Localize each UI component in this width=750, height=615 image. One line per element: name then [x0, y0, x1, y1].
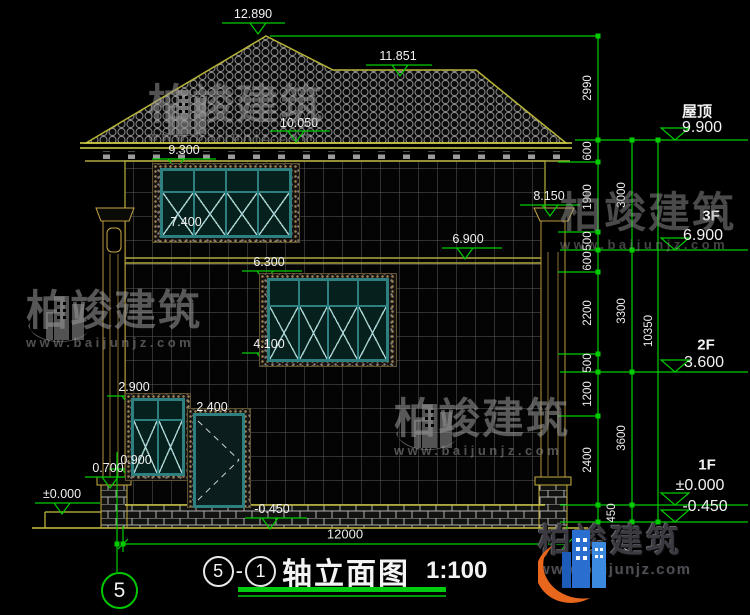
elev-door-top: 2.400	[196, 400, 227, 414]
entry-door	[193, 413, 245, 508]
dim-1900: 1900	[582, 184, 594, 210]
elevation-drawing: 12.890 11.851 10.050 9.300 8.150 7.400 6…	[0, 0, 750, 615]
dim-2990: 2990	[582, 75, 594, 101]
title-underline-thin	[238, 595, 446, 597]
dim-2400: 2400	[582, 447, 594, 473]
site-logo-icon	[538, 524, 624, 604]
elev-pier-cap: 0.700	[92, 461, 123, 475]
dim-500a: 500	[582, 231, 594, 250]
title-axis-start: 5	[203, 556, 234, 587]
title-underline-thick	[238, 587, 446, 592]
dim-600a: 600	[582, 141, 594, 160]
site-logo: 柏竣建筑 www.baijunjz.com	[538, 524, 691, 578]
dim-3600: 3600	[616, 425, 628, 451]
rafter-tails	[88, 151, 568, 159]
level-1f-label: 1F	[698, 457, 716, 474]
plinth	[108, 505, 560, 528]
door-swing-icon	[196, 416, 242, 505]
dim-600b: 600	[582, 251, 594, 270]
elev-f3-floor: 6.900	[452, 232, 483, 246]
elev-pilaster: 8.150	[533, 189, 564, 203]
roof	[86, 36, 566, 143]
elev-f3-sill: 7.400	[170, 215, 201, 229]
title-scale: 1:100	[426, 557, 487, 585]
level-roof-value: 9.900	[682, 119, 722, 137]
entry-step	[45, 512, 101, 528]
elev-ground: ±0.000	[43, 487, 81, 501]
level-2f-label: 2F	[697, 337, 715, 354]
elev-peak: 12.890	[234, 7, 272, 21]
dim-2200: 2200	[582, 300, 594, 326]
dim-450a: 450	[606, 503, 618, 522]
elev-f2-win-top: 6.300	[253, 255, 284, 269]
dim-1200: 1200	[582, 381, 594, 407]
title-separator: -	[236, 558, 243, 584]
level-3f-value: 6.900	[683, 227, 723, 245]
elev-plinth: -0.450	[254, 502, 289, 516]
elev-f2-sill: 4.100	[253, 337, 284, 351]
level-below-value: -0.450	[682, 498, 727, 516]
elev-f1-sill: 0.900	[120, 453, 151, 467]
dim-3000: 3000	[616, 182, 628, 208]
level-1f-value: ±0.000	[676, 477, 725, 495]
dim-3300: 3300	[616, 298, 628, 324]
title-axis-end: 1	[245, 556, 276, 587]
elev-f1-win-top: 2.900	[118, 380, 149, 394]
dim-10350: 10350	[643, 315, 655, 347]
dim-12000: 12000	[327, 527, 363, 542]
f2-window	[267, 278, 389, 362]
elev-upper-eave: 10.050	[280, 116, 318, 130]
elev-ridge: 11.851	[379, 49, 416, 63]
elev-eave: 9.300	[168, 143, 199, 157]
level-3f-label: 3F	[702, 208, 720, 225]
level-2f-value: 3.600	[684, 354, 724, 372]
dim-500b: 500	[582, 353, 594, 372]
axis-bubble-5: 5	[101, 572, 138, 609]
eave-lines	[80, 143, 572, 148]
